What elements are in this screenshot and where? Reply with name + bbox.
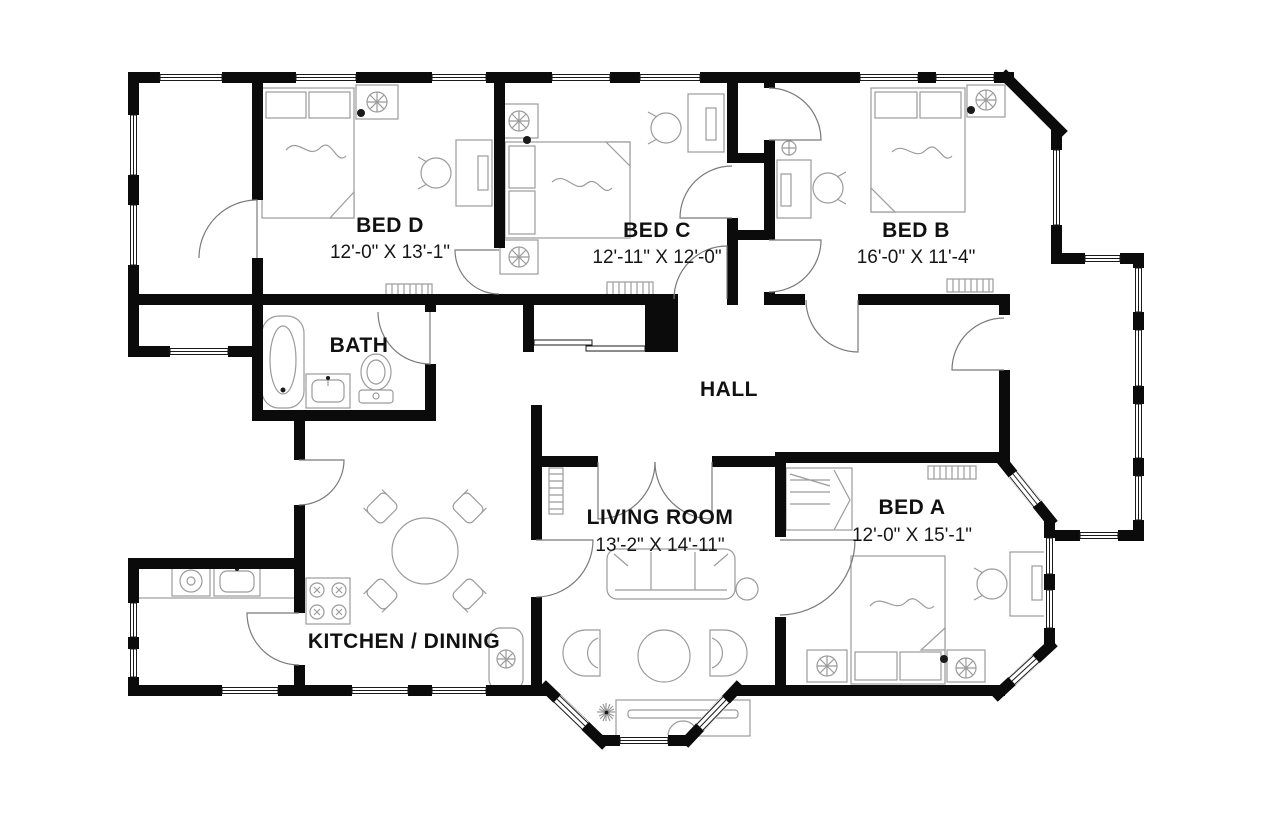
room-label-kitchen-dining: KITCHEN / DINING (308, 630, 500, 653)
monitor-icon (781, 174, 791, 206)
door-arc-icon (536, 540, 593, 597)
pillow-icon (855, 652, 897, 680)
window-icon (1133, 330, 1144, 386)
sprinkler-icon (523, 136, 531, 144)
window-icon (1085, 253, 1120, 264)
radiator-icon (947, 279, 993, 292)
door-arc-icon (299, 460, 344, 505)
door-arc-icon (680, 166, 732, 218)
sprinkler-icon (940, 655, 948, 663)
pillow-icon (309, 92, 350, 118)
door-arc-icon (806, 300, 858, 352)
vanity-sink-icon (306, 374, 350, 408)
door-arc-icon (455, 250, 499, 294)
room-label-bath: BATH (330, 334, 389, 357)
room-dims-bed-c: 12'-11" X 12'-0" (592, 247, 721, 268)
window-icon (128, 205, 139, 265)
window-icon (432, 685, 486, 696)
door-arc-icon (780, 540, 855, 615)
wardrobe-icon (786, 468, 852, 530)
ceiling-light-icon (782, 141, 796, 155)
armchair-icon (563, 630, 600, 676)
pillow-icon (509, 146, 535, 188)
dining-chair-icon (364, 490, 399, 525)
pillow-icon (509, 191, 535, 234)
room-dims-living-room: 13'-2" X 14'-11" (595, 535, 724, 556)
sofa-icon (607, 549, 735, 599)
window-icon (640, 72, 700, 83)
window-icon (1044, 590, 1055, 628)
room-dims-bed-b: 16'-0" X 11'-4" (857, 247, 976, 268)
ceiling-light-icon (509, 111, 529, 131)
ceiling-light-icon (509, 247, 529, 267)
bathtub-icon (262, 316, 304, 408)
ceiling-light-icon (956, 658, 976, 678)
window-icon (1051, 150, 1062, 225)
window-icon (128, 649, 139, 677)
bath-furniture (262, 316, 393, 408)
chimney-icon (645, 294, 678, 352)
utility-counter (134, 564, 300, 598)
door-arc-icon (769, 88, 821, 140)
window-icon (1010, 471, 1040, 507)
chair-icon (977, 569, 1007, 599)
toilet-icon (359, 354, 393, 403)
dining-table-icon (392, 518, 458, 584)
radiator-icon (549, 468, 563, 514)
window-icon (1133, 476, 1144, 520)
door-arc-icon (199, 200, 257, 258)
window-icon (296, 72, 356, 83)
pillow-icon (900, 652, 941, 680)
pillow-icon (266, 92, 306, 118)
ceiling-light-icon (817, 656, 837, 676)
chair-icon (651, 113, 681, 143)
sliding-door-icon (534, 340, 592, 345)
window-icon (1044, 538, 1055, 574)
pillow-icon (875, 92, 917, 118)
window-icon (128, 603, 139, 637)
monitor-icon (706, 108, 716, 140)
window-icon (1009, 656, 1039, 684)
sprinkler-icon (357, 109, 365, 117)
window-icon (222, 685, 278, 696)
room-label-living-room: LIVING ROOM (587, 506, 734, 529)
room-dims-bed-d: 12'-0" X 13'-1" (330, 242, 450, 263)
sliding-door-icon (586, 346, 645, 351)
ceiling-light-icon (976, 90, 996, 110)
window-icon (170, 346, 228, 357)
monitor-icon (478, 156, 488, 190)
window-icon (160, 72, 222, 83)
hall-closet (534, 340, 645, 351)
floor-plan: BED D 12'-0" X 13'-1" BED C 12'-11" X 12… (0, 0, 1280, 828)
window-icon (1133, 404, 1144, 458)
window-icon (1133, 268, 1144, 312)
plant-icon (597, 703, 615, 721)
door-arc-icon (247, 613, 299, 665)
ceiling-light-icon (367, 92, 387, 112)
monitor-icon (1032, 566, 1042, 600)
radiator-icon (607, 282, 653, 295)
room-label-bed-b: BED B (882, 219, 950, 242)
room-dims-bed-a: 12'-0" X 15'-1" (852, 525, 972, 546)
room-label-hall: HALL (700, 378, 758, 401)
window-icon (936, 72, 994, 83)
room-label-bed-c: BED C (623, 219, 691, 242)
dining-chair-icon (364, 577, 399, 612)
radiator-icon (928, 466, 976, 479)
kitchen-dining-furniture (134, 490, 486, 624)
window-icon (1080, 530, 1118, 541)
dining-chair-icon (451, 577, 486, 612)
door-arc-icon (769, 240, 821, 292)
window-icon (128, 115, 139, 175)
stove-icon (306, 578, 350, 624)
floor-plan-page: BED D 12'-0" X 13'-1" BED C 12'-11" X 12… (0, 0, 1280, 828)
armchair-icon (710, 630, 747, 676)
room-label-bed-a: BED A (878, 496, 945, 519)
window-icon (552, 72, 610, 83)
coffee-table-icon (638, 630, 690, 682)
chair-icon (421, 158, 451, 188)
window-icon (554, 696, 588, 729)
chair-icon (813, 173, 843, 203)
window-icon (432, 72, 486, 83)
window-icon (620, 735, 668, 746)
room-label-bed-d: BED D (356, 214, 424, 237)
pillow-icon (920, 92, 961, 118)
door-arc-icon (952, 318, 1004, 370)
sprinkler-icon (967, 106, 975, 114)
side-table-icon (736, 578, 758, 600)
window-icon (860, 72, 918, 83)
window-icon (352, 685, 408, 696)
dining-chair-icon (451, 490, 486, 525)
